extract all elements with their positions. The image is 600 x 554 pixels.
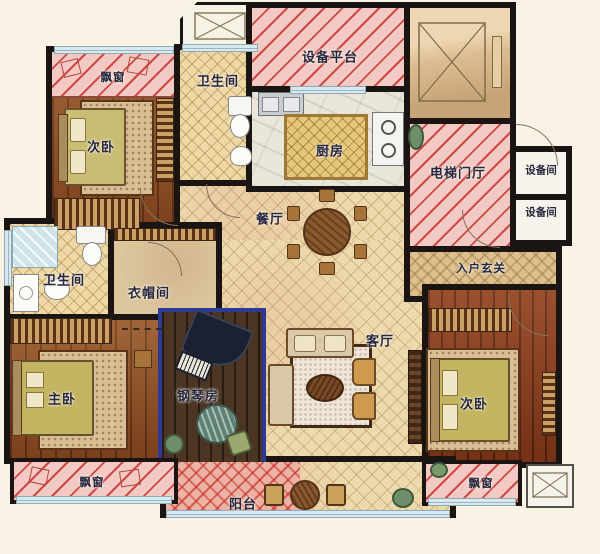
label-bay-bottom-right: 飘窗 (469, 475, 494, 491)
dining-chair-s (319, 262, 335, 275)
label-equip-room-1: 设备间 (525, 163, 557, 178)
label-cloakroom: 衣帽间 (128, 283, 170, 302)
label-bedroom-b: 次卧 (460, 394, 488, 413)
master-pillow2 (26, 392, 44, 408)
window-balcony (166, 510, 450, 518)
sofa-cushion2 (324, 335, 346, 352)
sofa-left (268, 364, 294, 426)
armchair-2 (352, 392, 376, 420)
stove-burner1 (381, 120, 396, 135)
sofa-top (286, 328, 354, 358)
bay-bl-sketch-2 (119, 469, 141, 488)
coffee-table (306, 374, 344, 402)
label-foyer: 入户玄关 (456, 260, 506, 276)
dining-table (303, 208, 351, 256)
bedroom-b-wardrobe (428, 308, 512, 332)
armchair-1 (352, 358, 376, 386)
elevator-door-slot (492, 36, 502, 88)
label-equip-room-2: 设备间 (525, 205, 557, 220)
cloakroom-threshold (122, 328, 162, 330)
kitchen-sink (258, 92, 304, 116)
window-bay-top-left (54, 46, 174, 54)
bedroom-b-pillow2 (442, 404, 458, 430)
balcony-chair-2 (326, 484, 346, 506)
dining-chair-ne (354, 206, 367, 221)
bay-bl-sketch-1 (29, 466, 50, 485)
label-bath-left: 卫生间 (43, 270, 85, 289)
dining-chair-sw (287, 244, 300, 259)
door-arc-entry (516, 124, 558, 166)
piano-plant (164, 434, 184, 454)
window-bay-bottom-left (16, 496, 172, 504)
balcony-plant (392, 488, 414, 508)
window-bath-left (4, 230, 12, 286)
bath-top-toilet (230, 114, 250, 138)
balcony-table (290, 480, 320, 510)
label-living: 客厅 (366, 331, 394, 350)
balcony-plant-2 (430, 462, 448, 478)
tv-cabinet (408, 350, 422, 444)
bath-top-sink (230, 146, 252, 166)
bedroom-a-pillow (70, 118, 86, 142)
sofa-cushion1 (294, 335, 316, 352)
cloakroom-wardrobe (114, 228, 216, 241)
window-bath-top (182, 44, 258, 52)
label-bay-top-left: 飘窗 (101, 69, 126, 85)
bedroom-a-pillow2 (70, 150, 86, 174)
shaft-x-marker (194, 12, 246, 40)
stove-burner2 (381, 143, 396, 158)
bedroom-b-pillow (442, 370, 458, 396)
bedroom-b-desk (542, 372, 556, 436)
label-bay-bottom-left: 飘窗 (80, 474, 105, 490)
master-headboard (12, 360, 22, 436)
bath-top-tank (228, 96, 252, 116)
label-piano-room: 钢琴房 (177, 386, 219, 405)
bedroom-a-headboard (58, 114, 68, 182)
equip-divider-wall (516, 194, 566, 200)
label-equip-platform: 设备平台 (302, 47, 358, 66)
kitchen-stove (372, 112, 404, 166)
external-shaft-x-marker (532, 472, 568, 498)
window-kitchen (290, 86, 366, 94)
hall-plant (408, 124, 424, 150)
dining-chair-se (354, 244, 367, 259)
label-bedroom-a: 次卧 (87, 137, 115, 156)
bath-left-washer (13, 274, 39, 312)
window-bay-bottom-right (428, 498, 516, 506)
label-master: 主卧 (48, 389, 76, 408)
kitchen-sink-basin1 (262, 97, 279, 112)
floor-plan: 飘窗 次卧 卫生间 设备平台 厨房 电梯门厅 设备间 设备间 餐厅 入户玄关 卫… (0, 0, 600, 554)
dining-chair-nw (287, 206, 300, 221)
kitchen-sink-basin2 (283, 97, 300, 112)
elevator-x-marker (418, 22, 486, 102)
master-nightstand (134, 350, 152, 368)
bedroom-a-cabinet (156, 98, 174, 182)
dining-chair-n (319, 189, 335, 202)
master-wardrobe (10, 318, 112, 344)
label-bath-top: 卫生间 (197, 71, 239, 90)
label-balcony: 阳台 (229, 494, 257, 513)
label-kitchen: 厨房 (316, 141, 344, 160)
bath-left-toilet (82, 242, 102, 266)
bay-tl-sketch-2 (127, 56, 149, 75)
washer-door (19, 286, 33, 300)
bedroom-b-headboard (430, 358, 440, 442)
balcony-chair-1 (264, 484, 284, 506)
label-elevator-hall: 电梯门厅 (430, 163, 486, 182)
master-pillow (26, 372, 44, 388)
bath-left-shower (12, 226, 58, 268)
label-dining: 餐厅 (256, 209, 284, 228)
